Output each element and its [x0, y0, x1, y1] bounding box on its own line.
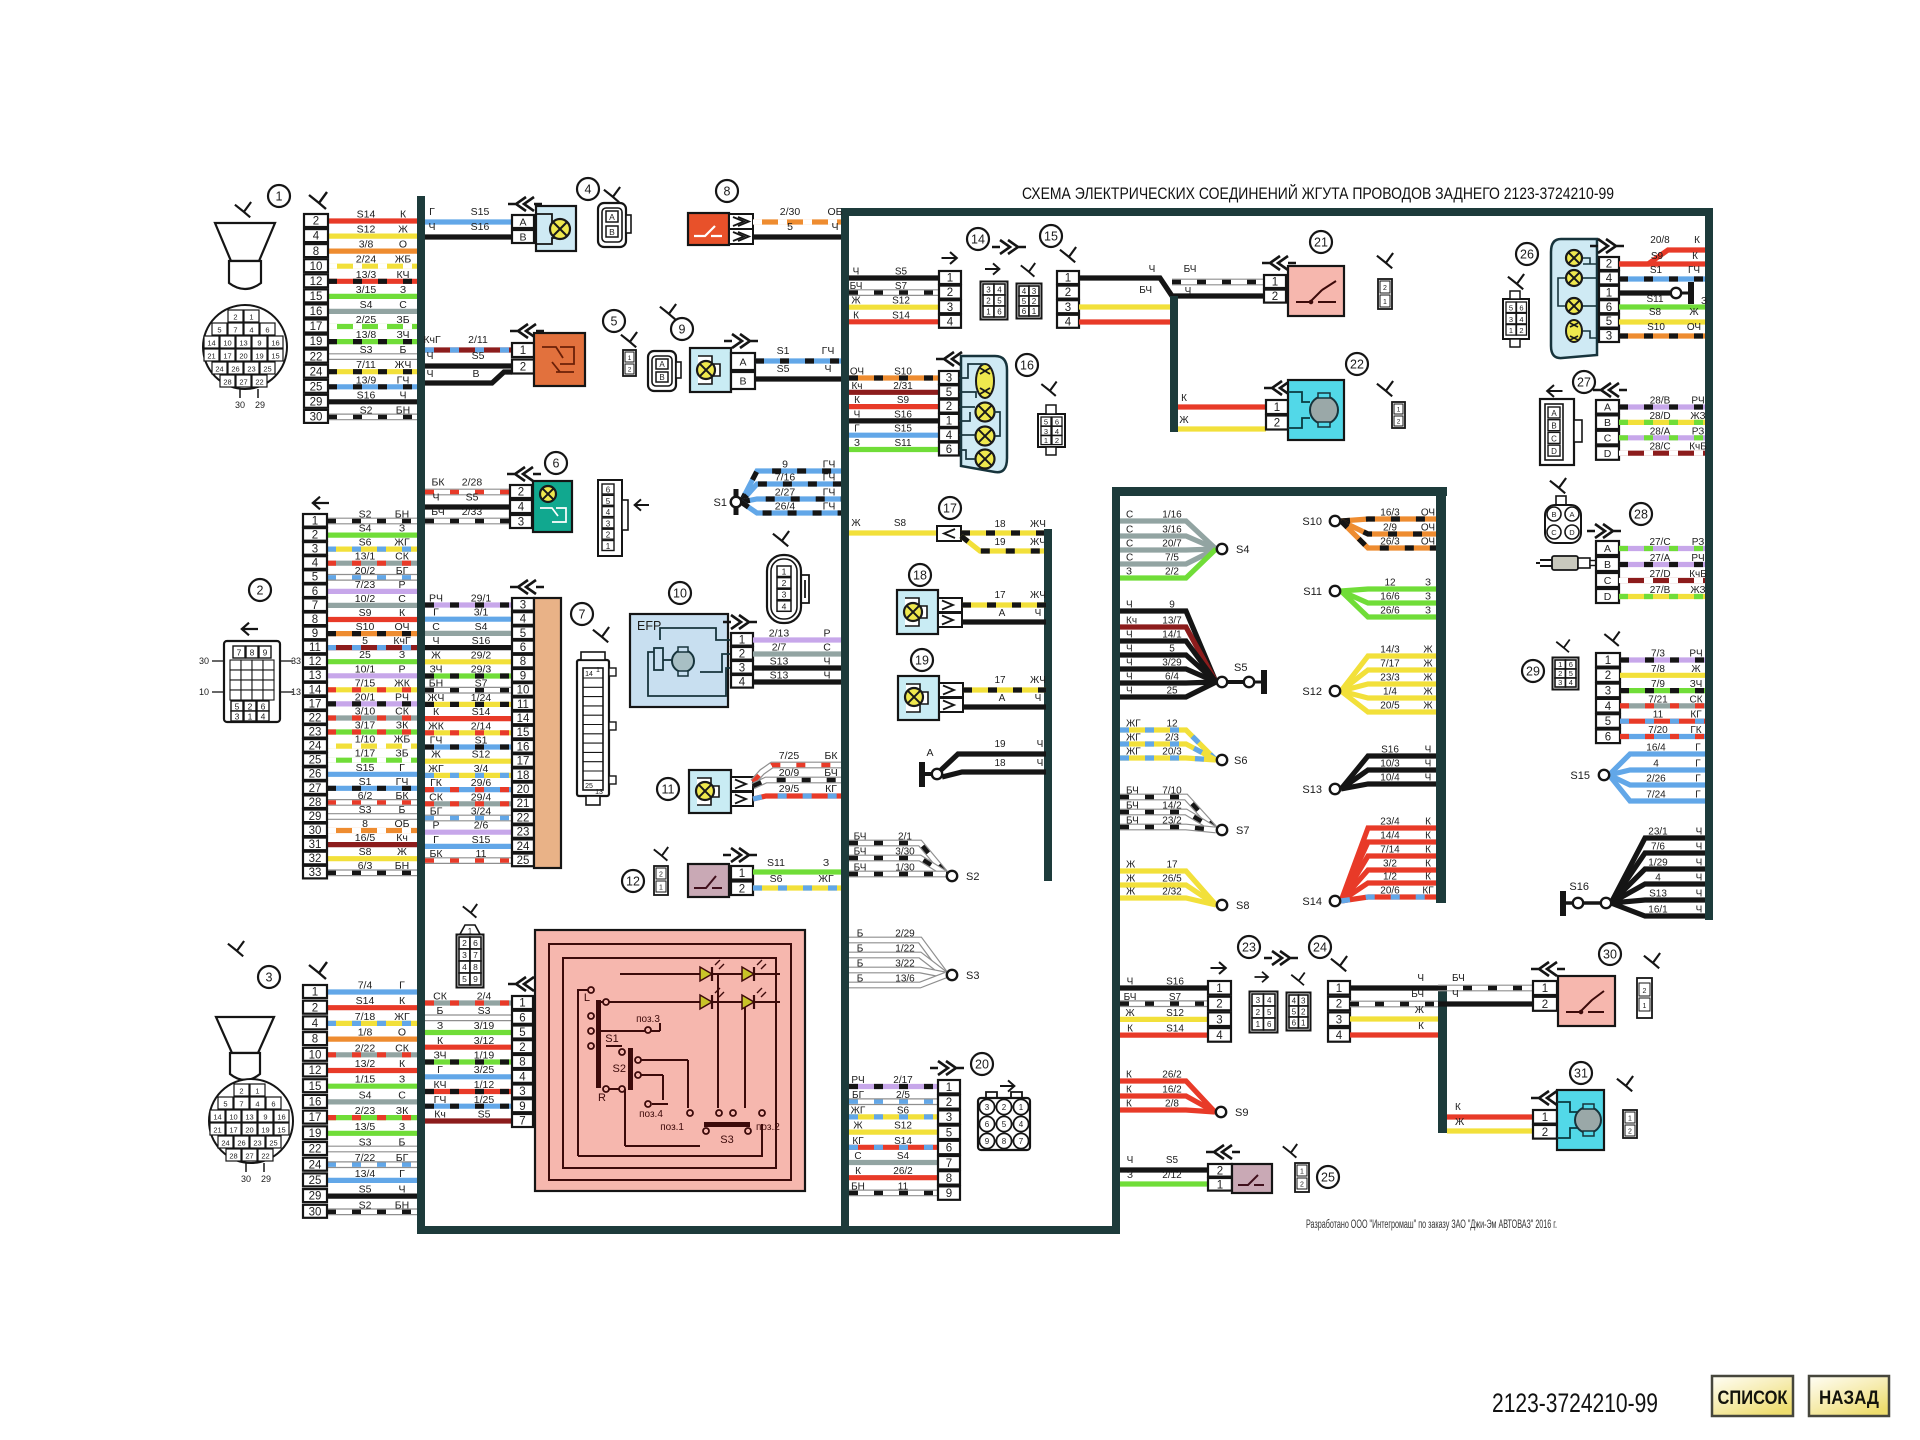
svg-text:28/D: 28/D	[1649, 411, 1670, 422]
svg-text:К: К	[1455, 1102, 1461, 1113]
svg-text:S6: S6	[1234, 755, 1247, 767]
svg-text:17: 17	[310, 321, 323, 333]
svg-text:СК: СК	[433, 991, 448, 1003]
svg-text:10: 10	[310, 261, 323, 273]
svg-text:2: 2	[606, 531, 611, 540]
svg-text:ГЧ: ГЧ	[823, 459, 836, 471]
svg-text:А: А	[1604, 402, 1611, 414]
svg-text:С: С	[854, 1151, 861, 1162]
svg-text:16/4: 16/4	[1646, 743, 1666, 754]
svg-text:3: 3	[1301, 996, 1306, 1005]
svg-text:16/2: 16/2	[1162, 1085, 1182, 1096]
svg-text:Ж: Ж	[1179, 415, 1189, 426]
svg-text:1: 1	[628, 355, 632, 362]
svg-text:ОБ: ОБ	[394, 818, 409, 830]
svg-text:4: 4	[1519, 315, 1523, 324]
svg-text:2/5: 2/5	[896, 1090, 910, 1101]
svg-text:S4: S4	[1236, 544, 1249, 556]
svg-text:6: 6	[1055, 418, 1059, 427]
svg-text:2/27: 2/27	[775, 487, 796, 499]
svg-text:2: 2	[1397, 419, 1401, 426]
svg-text:25: 25	[517, 855, 530, 867]
svg-text:6: 6	[553, 457, 560, 471]
svg-text:6: 6	[1022, 307, 1027, 316]
svg-text:7/5: 7/5	[1165, 553, 1179, 564]
svg-text:11: 11	[309, 642, 321, 654]
svg-text:16: 16	[271, 339, 279, 348]
svg-text:6: 6	[473, 938, 478, 948]
svg-text:2/8: 2/8	[1165, 1099, 1179, 1110]
svg-text:27: 27	[239, 378, 247, 387]
svg-text:20/7: 20/7	[1162, 539, 1182, 550]
svg-text:11: 11	[898, 1181, 909, 1192]
svg-text:8: 8	[312, 1034, 318, 1046]
svg-text:1/15: 1/15	[355, 1074, 376, 1086]
svg-text:3: 3	[1256, 996, 1261, 1005]
svg-text:1: 1	[1397, 407, 1401, 414]
svg-text:5: 5	[946, 1127, 952, 1139]
svg-text:S3: S3	[359, 804, 372, 816]
svg-text:29/5: 29/5	[779, 783, 800, 795]
svg-text:3: 3	[519, 1086, 525, 1098]
svg-text:В: В	[739, 375, 746, 387]
svg-text:7/16: 7/16	[775, 472, 796, 484]
svg-text:4: 4	[1606, 273, 1613, 285]
svg-text:29: 29	[309, 1191, 322, 1203]
svg-text:2: 2	[520, 362, 526, 374]
svg-text:3/1: 3/1	[474, 607, 489, 619]
svg-text:2/9: 2/9	[1383, 523, 1397, 534]
svg-text:РЧ: РЧ	[851, 1075, 864, 1086]
svg-text:14/2: 14/2	[1162, 801, 1182, 812]
svg-text:4: 4	[947, 316, 954, 328]
svg-text:14: 14	[517, 713, 530, 725]
svg-text:20/8: 20/8	[1650, 235, 1670, 246]
svg-text:1/12: 1/12	[474, 1079, 495, 1091]
svg-text:К: К	[399, 607, 406, 619]
svg-text:9: 9	[263, 648, 268, 658]
svg-text:25: 25	[585, 783, 593, 790]
svg-text:17: 17	[994, 590, 1006, 601]
svg-text:2/11: 2/11	[468, 334, 488, 346]
svg-text:19: 19	[309, 1128, 322, 1140]
svg-text:БЧ: БЧ	[1126, 801, 1139, 812]
svg-text:4: 4	[312, 1018, 319, 1030]
svg-text:5: 5	[997, 296, 1002, 305]
svg-text:Ж: Ж	[1455, 1117, 1465, 1128]
svg-text:15: 15	[309, 1081, 322, 1093]
svg-text:S8: S8	[1649, 307, 1662, 318]
svg-text:25: 25	[1321, 1171, 1335, 1185]
svg-text:3: 3	[1032, 287, 1037, 296]
svg-text:6: 6	[519, 1012, 525, 1024]
svg-text:26/5: 26/5	[1162, 874, 1182, 885]
svg-text:13/2: 13/2	[355, 1058, 376, 1070]
svg-text:16: 16	[277, 1113, 285, 1122]
svg-text:Ч: Ч	[1126, 686, 1133, 697]
svg-text:D: D	[1604, 448, 1612, 460]
svg-text:1: 1	[276, 190, 283, 204]
svg-text:9: 9	[679, 323, 686, 337]
svg-text:12: 12	[1166, 719, 1178, 730]
svg-text:S13: S13	[1649, 889, 1667, 900]
svg-text:ГК: ГК	[1690, 725, 1701, 736]
svg-text:5: 5	[1606, 316, 1612, 328]
svg-text:1: 1	[1605, 655, 1611, 667]
svg-text:Г: Г	[433, 607, 439, 619]
svg-text:1: 1	[249, 313, 253, 322]
svg-text:7/10: 7/10	[1162, 786, 1182, 797]
svg-text:С: С	[1551, 434, 1557, 443]
svg-text:S10: S10	[894, 367, 912, 378]
svg-text:ЗЧ: ЗЧ	[396, 329, 409, 341]
svg-text:Ч: Ч	[854, 409, 861, 420]
svg-text:21: 21	[207, 352, 215, 361]
svg-text:5: 5	[787, 221, 793, 233]
svg-text:S12: S12	[357, 224, 376, 236]
svg-text:2/1: 2/1	[898, 832, 912, 843]
svg-text:8: 8	[362, 818, 368, 830]
svg-text:21: 21	[1314, 236, 1328, 250]
svg-text:РЧ: РЧ	[1689, 649, 1702, 660]
svg-text:16/3: 16/3	[1380, 508, 1400, 519]
svg-text:1/19: 1/19	[474, 1050, 495, 1062]
svg-text:З: З	[437, 1020, 443, 1032]
svg-text:А: А	[926, 747, 933, 759]
svg-text:2: 2	[1542, 999, 1548, 1011]
svg-text:S1: S1	[605, 1033, 618, 1045]
svg-text:4: 4	[1216, 1030, 1223, 1042]
svg-text:10: 10	[309, 1049, 322, 1061]
svg-text:S3: S3	[720, 1134, 733, 1146]
svg-text:1/16: 1/16	[1162, 510, 1182, 521]
svg-text:7: 7	[946, 1158, 952, 1170]
svg-text:5: 5	[1022, 297, 1027, 306]
svg-text:ЖГ: ЖГ	[1126, 733, 1141, 744]
svg-text:З: З	[399, 1121, 405, 1133]
svg-text:2: 2	[1383, 285, 1387, 292]
svg-text:3: 3	[1065, 302, 1071, 314]
svg-text:S12: S12	[1166, 1008, 1184, 1019]
svg-text:ЖБ: ЖБ	[394, 734, 411, 746]
svg-text:Ч: Ч	[1696, 858, 1703, 869]
svg-text:4: 4	[312, 558, 319, 570]
svg-text:Ч: Ч	[1425, 759, 1432, 770]
svg-text:28: 28	[309, 797, 322, 809]
svg-text:1/24: 1/24	[471, 692, 492, 704]
svg-text:S10: S10	[1647, 322, 1665, 333]
svg-text:БЧ: БЧ	[1139, 285, 1152, 296]
svg-text:8: 8	[313, 246, 319, 258]
svg-text:С: С	[1126, 553, 1133, 564]
svg-text:З: З	[399, 1074, 405, 1086]
svg-text:15: 15	[310, 291, 323, 303]
svg-text:7/20: 7/20	[1648, 725, 1668, 736]
svg-text:Ж: Ж	[851, 296, 861, 307]
svg-text:А: А	[999, 608, 1006, 619]
svg-text:10: 10	[673, 587, 687, 601]
svg-text:2/13: 2/13	[769, 628, 790, 640]
svg-text:7: 7	[237, 648, 242, 658]
svg-text:ГЧ: ГЧ	[823, 472, 836, 484]
svg-text:13/3: 13/3	[356, 269, 377, 281]
svg-text:2/6: 2/6	[474, 820, 489, 832]
svg-text:6/2: 6/2	[358, 790, 373, 802]
svg-text:S4: S4	[359, 1089, 372, 1101]
svg-text:А: А	[1604, 543, 1611, 555]
svg-text:БН: БН	[429, 678, 443, 690]
svg-text:ОЧ: ОЧ	[395, 621, 410, 633]
svg-text:S13: S13	[770, 670, 789, 682]
svg-text:Ч: Ч	[1127, 977, 1134, 988]
svg-text:Р: Р	[398, 663, 405, 675]
svg-text:3: 3	[1605, 686, 1611, 698]
svg-text:3/8: 3/8	[359, 239, 374, 251]
svg-text:2: 2	[1336, 999, 1342, 1011]
svg-text:30: 30	[309, 1206, 322, 1218]
svg-text:РЧ: РЧ	[1691, 396, 1704, 407]
svg-text:4: 4	[1055, 427, 1059, 436]
svg-text:7/9: 7/9	[1651, 679, 1665, 690]
svg-text:S12: S12	[892, 296, 910, 307]
svg-text:S12: S12	[1302, 686, 1322, 698]
svg-text:9: 9	[473, 974, 478, 984]
svg-text:ЖК: ЖК	[394, 677, 411, 689]
svg-text:З: З	[1425, 592, 1431, 603]
svg-text:2: 2	[1217, 1165, 1223, 1177]
svg-text:БЧ: БЧ	[1452, 973, 1465, 984]
svg-text:27: 27	[1577, 376, 1591, 390]
svg-text:БЧ: БЧ	[854, 832, 867, 843]
svg-text:S16: S16	[1381, 745, 1399, 756]
svg-text:1: 1	[1643, 1003, 1647, 1010]
svg-text:1: 1	[248, 712, 253, 722]
svg-text:S7: S7	[1236, 825, 1249, 837]
svg-text:С: С	[432, 621, 440, 633]
svg-text:4: 4	[1065, 316, 1072, 328]
svg-text:7/18: 7/18	[355, 1011, 376, 1023]
svg-text:S16: S16	[471, 221, 490, 233]
svg-text:7: 7	[312, 600, 318, 612]
svg-text:1/30: 1/30	[895, 863, 915, 874]
svg-text:В: В	[659, 373, 664, 382]
svg-text:Б: Б	[857, 944, 864, 955]
svg-text:S9: S9	[359, 607, 372, 619]
svg-text:13/8: 13/8	[356, 329, 377, 341]
svg-text:25: 25	[263, 365, 271, 374]
svg-text:27: 27	[309, 783, 322, 795]
svg-text:КЧ: КЧ	[396, 269, 409, 281]
svg-text:2: 2	[1274, 418, 1280, 430]
svg-text:4: 4	[1292, 996, 1297, 1005]
svg-text:4: 4	[585, 183, 592, 197]
svg-text:S13: S13	[770, 656, 789, 668]
svg-text:4: 4	[1336, 1030, 1343, 1042]
svg-text:28/А: 28/А	[1650, 426, 1671, 437]
svg-text:24: 24	[310, 366, 323, 378]
svg-text:Ч: Ч	[1452, 989, 1459, 1000]
svg-text:S2: S2	[613, 1063, 626, 1075]
svg-text:5: 5	[519, 1027, 525, 1039]
svg-text:З: З	[823, 857, 829, 869]
svg-text:S14: S14	[892, 310, 910, 321]
svg-text:1: 1	[1256, 1020, 1261, 1029]
svg-text:Разработано ООО "Интегромаш" п: Разработано ООО "Интегромаш" по заказу З…	[1306, 1219, 1557, 1231]
svg-text:3: 3	[1336, 1014, 1342, 1026]
svg-text:S1: S1	[475, 735, 488, 747]
svg-text:ЖЧ: ЖЧ	[1030, 537, 1046, 548]
svg-text:S4: S4	[360, 299, 373, 311]
svg-text:19: 19	[255, 352, 263, 361]
svg-text:З: З	[1425, 578, 1431, 589]
svg-text:ЖГ: ЖГ	[394, 537, 410, 549]
svg-text:R: R	[598, 1092, 606, 1104]
svg-text:ГЧ: ГЧ	[1688, 265, 1700, 276]
svg-text:23: 23	[309, 727, 322, 739]
svg-text:12: 12	[626, 875, 640, 889]
svg-text:Ж: Ж	[1423, 687, 1433, 698]
svg-text:ГЧ: ГЧ	[823, 487, 836, 499]
svg-text:S8: S8	[894, 518, 907, 529]
svg-text:1: 1	[1383, 299, 1387, 306]
svg-text:25: 25	[359, 649, 371, 661]
svg-text:КГ: КГ	[1690, 710, 1702, 721]
svg-text:3: 3	[1216, 1014, 1222, 1026]
svg-text:1: 1	[596, 667, 600, 674]
svg-text:2: 2	[312, 530, 318, 542]
svg-text:26/2: 26/2	[893, 1166, 913, 1177]
svg-text:С: С	[1126, 539, 1133, 550]
svg-text:Б: Б	[857, 959, 864, 970]
svg-text:S1: S1	[1650, 265, 1663, 276]
svg-text:S5: S5	[1166, 1155, 1179, 1166]
svg-text:4: 4	[782, 601, 787, 611]
svg-text:Ч: Ч	[400, 389, 407, 401]
svg-text:S14: S14	[894, 1136, 912, 1147]
svg-text:ГЧ: ГЧ	[396, 776, 409, 788]
svg-text:Б: Б	[857, 929, 864, 940]
svg-text:2/31: 2/31	[893, 381, 913, 392]
svg-text:8: 8	[312, 614, 318, 626]
svg-text:В: В	[1551, 422, 1556, 431]
svg-text:20/1: 20/1	[355, 691, 376, 703]
svg-text:1: 1	[1558, 660, 1562, 669]
svg-text:ЖЧ: ЖЧ	[1030, 675, 1046, 686]
svg-text:ОБ: ОБ	[827, 206, 842, 218]
svg-text:20/5: 20/5	[1380, 701, 1400, 712]
svg-text:2: 2	[947, 287, 953, 299]
svg-text:2: 2	[628, 367, 632, 374]
svg-text:15: 15	[1044, 230, 1058, 244]
svg-text:Б: Б	[400, 344, 407, 356]
svg-text:S2: S2	[359, 509, 372, 521]
svg-text:С: С	[1604, 432, 1612, 444]
svg-text:17: 17	[309, 1112, 322, 1124]
svg-text:В: В	[1604, 417, 1611, 429]
svg-text:S2: S2	[360, 404, 373, 416]
svg-text:10: 10	[229, 1113, 237, 1122]
svg-text:13/1: 13/1	[355, 551, 376, 563]
svg-text:Б: Б	[437, 1005, 444, 1017]
svg-text:2123-3724210-99: 2123-3724210-99	[1492, 1388, 1658, 1418]
svg-text:Г: Г	[399, 980, 405, 992]
svg-text:S6: S6	[897, 1105, 910, 1116]
svg-text:1: 1	[1300, 1169, 1304, 1176]
svg-text:9: 9	[1169, 600, 1175, 611]
svg-text:Ж: Ж	[853, 1121, 863, 1132]
svg-text:6: 6	[271, 1100, 275, 1109]
svg-text:3: 3	[1044, 427, 1048, 436]
svg-text:23/3: 23/3	[1380, 673, 1400, 684]
svg-text:7: 7	[579, 608, 586, 622]
svg-text:ЖГ: ЖГ	[394, 1011, 410, 1023]
svg-text:Ч: Ч	[824, 656, 831, 668]
svg-text:1/17: 1/17	[355, 748, 376, 760]
svg-text:S6: S6	[770, 873, 783, 885]
svg-text:ОЧ: ОЧ	[1687, 322, 1701, 333]
svg-text:О: О	[399, 239, 407, 251]
svg-text:РЧ: РЧ	[1691, 553, 1704, 564]
svg-text:19: 19	[994, 739, 1006, 750]
svg-text:21: 21	[517, 798, 530, 810]
svg-text:3/12: 3/12	[474, 1035, 495, 1047]
svg-text:12: 12	[309, 1065, 322, 1077]
svg-text:10/4: 10/4	[1380, 773, 1400, 784]
svg-text:6: 6	[312, 586, 318, 598]
svg-text:S14: S14	[472, 706, 491, 718]
svg-text:1: 1	[1272, 277, 1278, 289]
svg-text:14: 14	[309, 684, 322, 696]
svg-text:Ж: Ж	[1415, 1005, 1425, 1016]
svg-text:25: 25	[310, 381, 323, 393]
svg-text:З: З	[1425, 606, 1431, 617]
svg-text:4: 4	[518, 502, 525, 514]
svg-text:С: С	[398, 1089, 406, 1101]
svg-text:29/2: 29/2	[471, 649, 492, 661]
svg-text:1: 1	[1301, 1018, 1306, 1027]
svg-text:S16: S16	[894, 409, 912, 420]
svg-text:БК: БК	[431, 477, 445, 489]
svg-text:22: 22	[309, 1144, 322, 1156]
svg-text:4: 4	[1655, 873, 1661, 884]
svg-text:3: 3	[462, 950, 467, 960]
svg-text:К: К	[1694, 235, 1700, 246]
svg-text:6: 6	[261, 702, 266, 712]
svg-text:24: 24	[1313, 941, 1327, 955]
svg-text:Р: Р	[432, 820, 439, 832]
svg-text:1/10: 1/10	[355, 734, 376, 746]
svg-text:13: 13	[239, 339, 247, 348]
svg-text:14: 14	[971, 233, 985, 247]
svg-text:БЧ: БЧ	[1411, 989, 1424, 1000]
svg-text:4: 4	[519, 1071, 526, 1083]
svg-text:К: К	[400, 209, 407, 221]
svg-text:С: С	[1551, 528, 1557, 537]
svg-text:Ч: Ч	[1037, 739, 1044, 750]
svg-text:2: 2	[239, 1087, 243, 1096]
svg-text:2: 2	[1519, 326, 1523, 335]
svg-text:28: 28	[1634, 508, 1648, 522]
svg-text:D: D	[1569, 528, 1575, 537]
svg-text:9: 9	[312, 628, 318, 640]
svg-text:29/3: 29/3	[471, 664, 492, 676]
svg-text:Ж: Ж	[1126, 874, 1136, 885]
svg-text:3: 3	[947, 302, 953, 314]
svg-text:24: 24	[215, 365, 223, 374]
svg-text:Г: Г	[854, 424, 860, 435]
svg-text:5: 5	[1605, 716, 1611, 728]
svg-text:С: С	[1604, 575, 1612, 587]
